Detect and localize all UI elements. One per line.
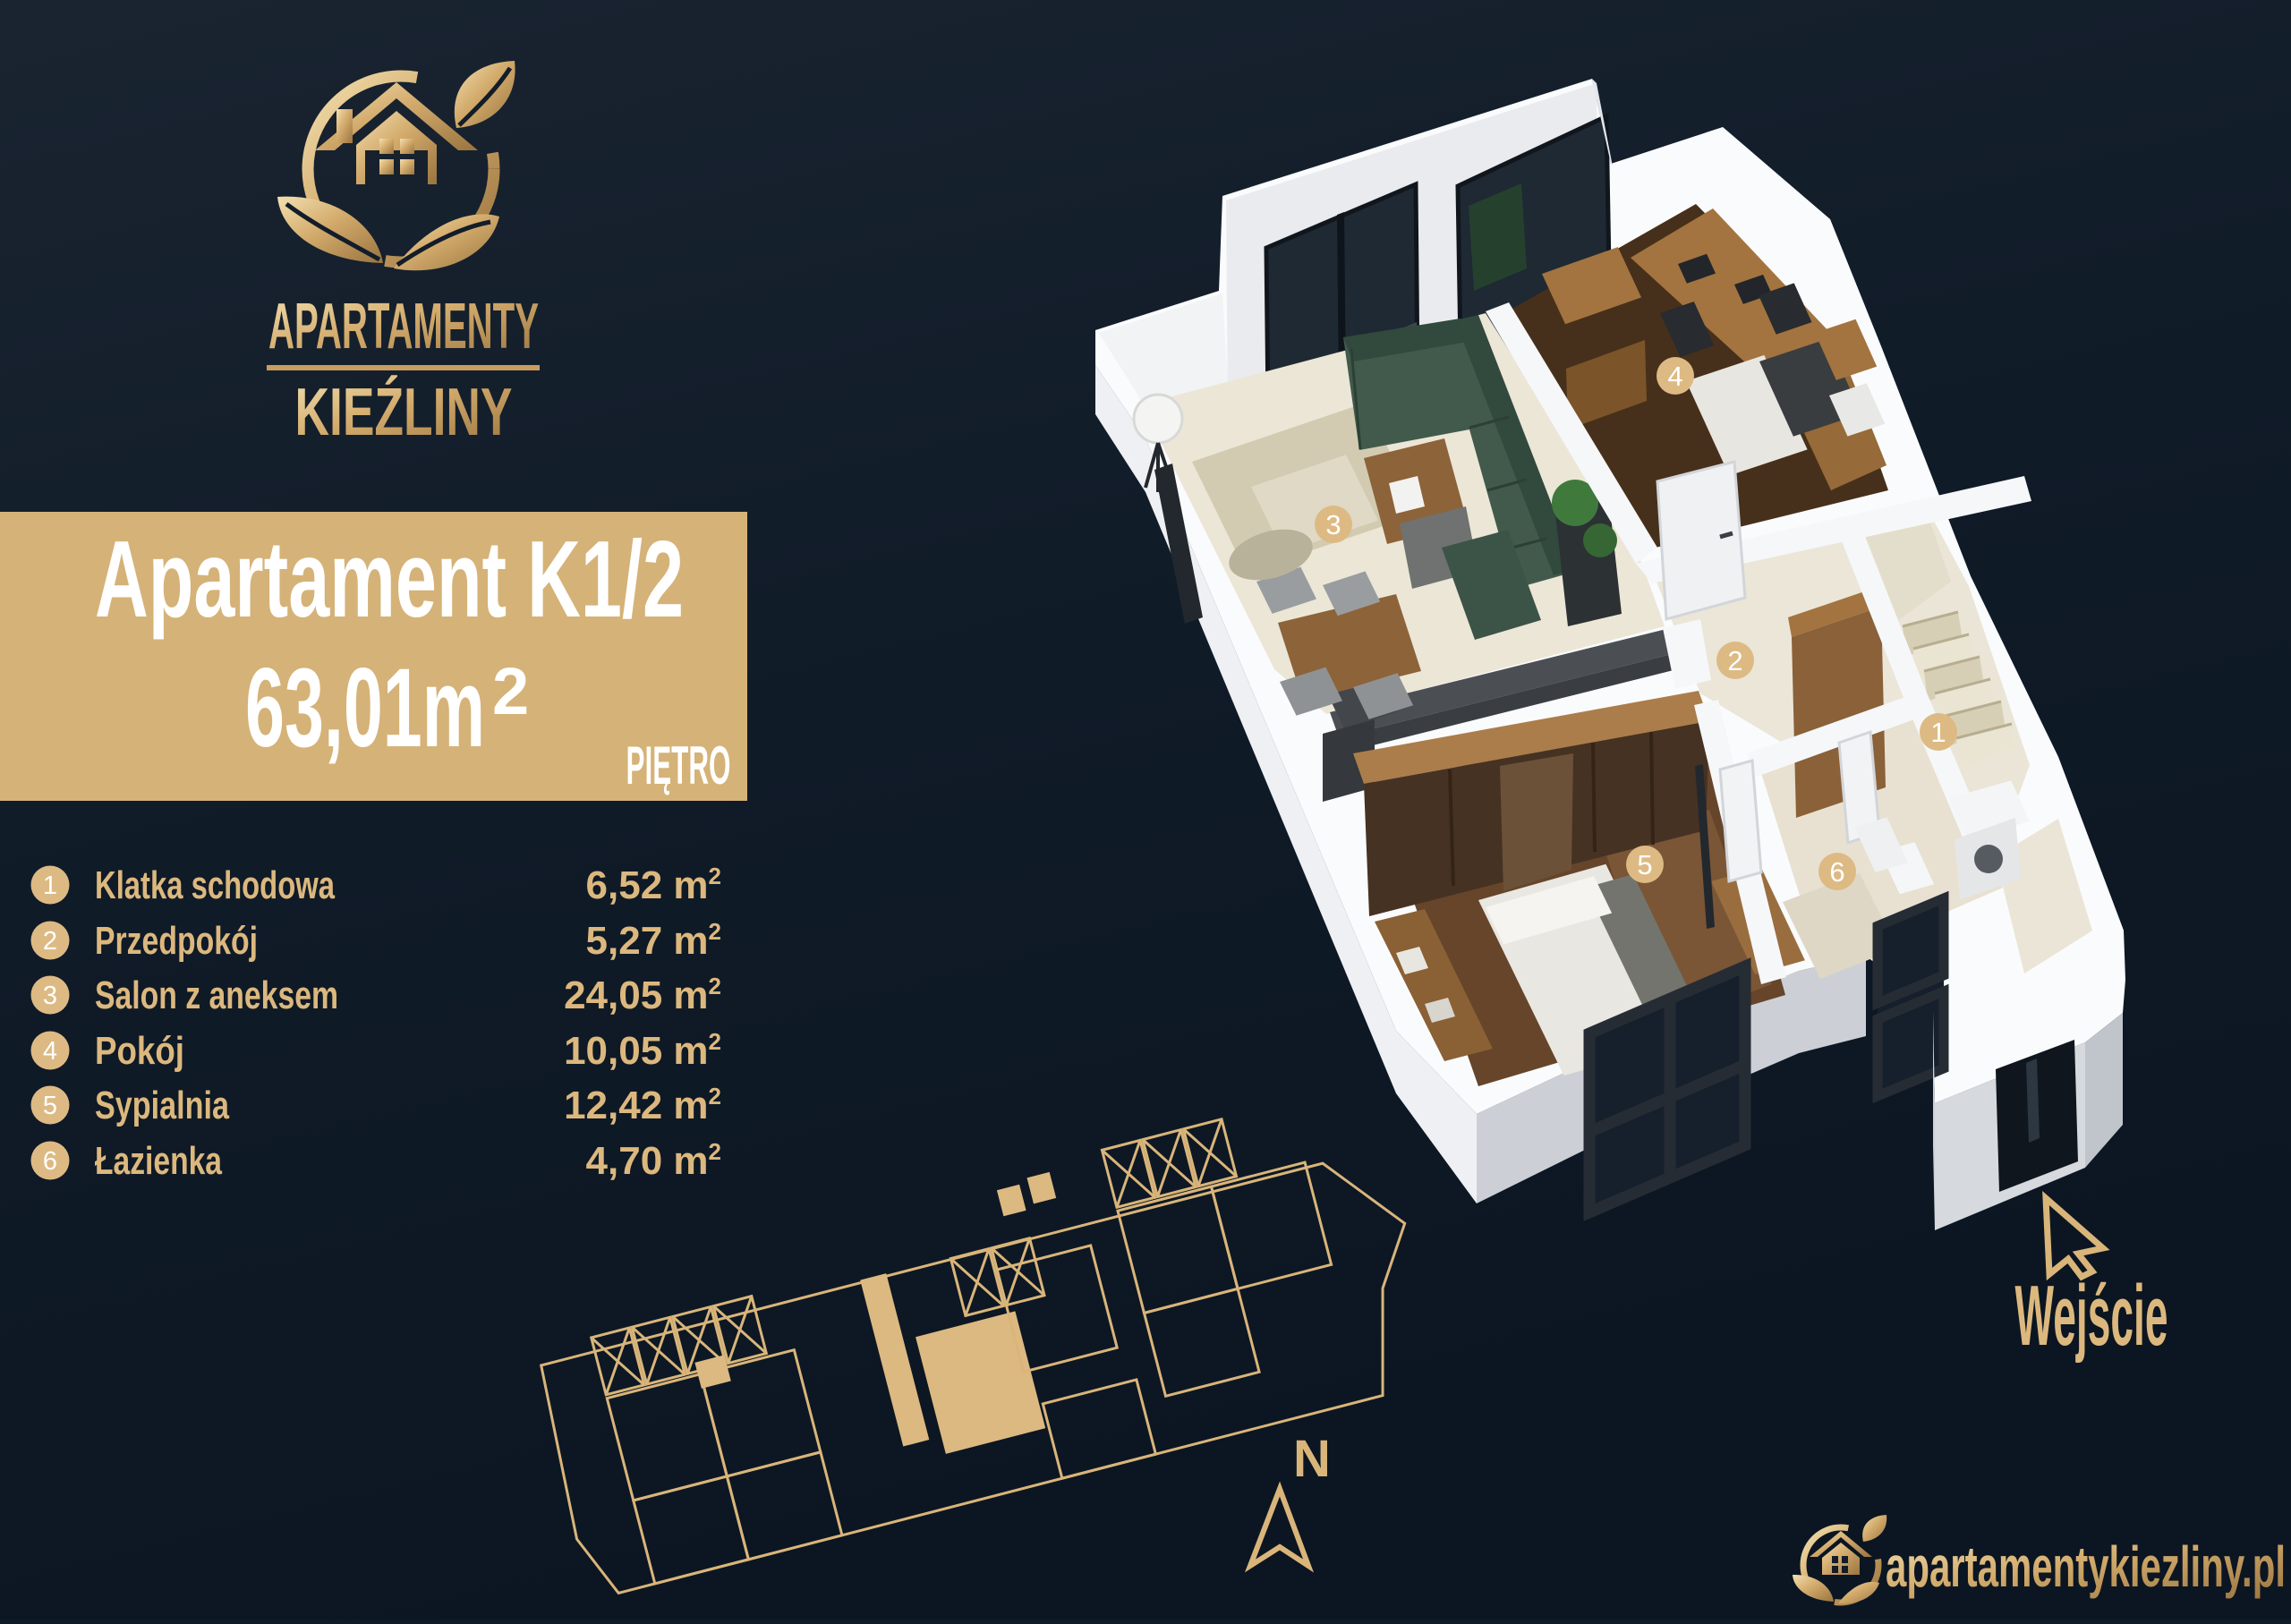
svg-text:Apartament K1/2: Apartament K1/2 xyxy=(95,518,684,640)
svg-text:Pokój: Pokój xyxy=(95,1029,184,1073)
svg-text:Sypialnia: Sypialnia xyxy=(95,1084,229,1127)
svg-text:2: 2 xyxy=(43,927,57,956)
svg-text:12,42 m2: 12,42 m2 xyxy=(564,1083,721,1127)
svg-text:1: 1 xyxy=(43,872,57,900)
svg-text:3: 3 xyxy=(43,982,57,1010)
svg-text:6: 6 xyxy=(1829,856,1844,888)
svg-text:Salon z aneksem: Salon z aneksem xyxy=(95,974,338,1017)
svg-text:5,27 m2: 5,27 m2 xyxy=(586,918,721,963)
svg-text:63,01m: 63,01m xyxy=(245,646,485,770)
svg-text:Łazienka: Łazienka xyxy=(95,1139,222,1183)
svg-text:KIEŹLINY: KIEŹLINY xyxy=(295,374,513,449)
svg-text:4: 4 xyxy=(43,1037,57,1066)
svg-text:N: N xyxy=(1293,1430,1331,1488)
svg-text:5: 5 xyxy=(1637,849,1652,880)
svg-text:1: 1 xyxy=(1930,717,1946,748)
svg-text:3: 3 xyxy=(1325,509,1341,540)
svg-text:24,05 m2: 24,05 m2 xyxy=(564,973,721,1017)
svg-text:5: 5 xyxy=(43,1092,57,1120)
svg-text:10,05 m2: 10,05 m2 xyxy=(564,1028,721,1073)
svg-text:PIĘTRO: PIĘTRO xyxy=(626,735,731,795)
svg-text:4: 4 xyxy=(1667,361,1682,392)
svg-text:2: 2 xyxy=(1727,645,1742,676)
svg-text:4,70 m2: 4,70 m2 xyxy=(586,1138,721,1183)
svg-text:APARTAMENTY: APARTAMENTY xyxy=(268,291,539,362)
svg-text:Wejście: Wejście xyxy=(2015,1268,2168,1364)
svg-text:2: 2 xyxy=(492,654,529,728)
svg-text:apartamentykiezliny.pl: apartamentykiezliny.pl xyxy=(1886,1535,2286,1599)
svg-text:Klatka schodowa: Klatka schodowa xyxy=(95,863,335,907)
svg-text:Przedpokój: Przedpokój xyxy=(95,919,258,963)
svg-text:6,52 m2: 6,52 m2 xyxy=(586,863,721,907)
svg-text:6: 6 xyxy=(43,1147,57,1176)
